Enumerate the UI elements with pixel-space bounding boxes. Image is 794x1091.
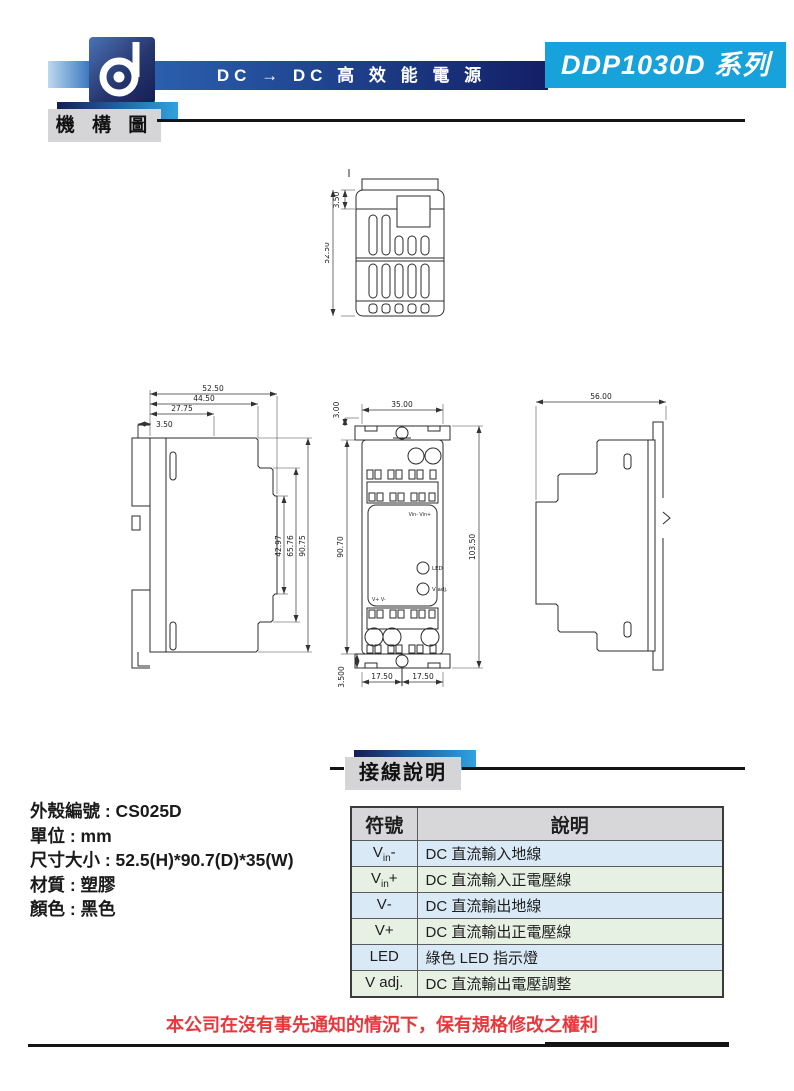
col-header-desc: 說明: [417, 807, 723, 841]
right-side-view-drawing: 56.00: [520, 388, 700, 680]
table-row: LED 綠色 LED 指示燈: [351, 945, 723, 971]
desc-cell: DC 直流輸出正電壓線: [417, 919, 723, 945]
terminal-strip: [369, 610, 435, 618]
dim-label: 17.50: [412, 672, 434, 681]
product-info-line: 材質 : 塑膠: [30, 873, 345, 898]
desc-cell: DC 直流輸出電壓調整: [417, 971, 723, 998]
symbol-cell: Vin-: [351, 841, 417, 867]
dim-label: 42.97: [274, 535, 283, 557]
table-header-row: 符號 說明: [351, 807, 723, 841]
vadj-potentiometer: [417, 583, 429, 595]
footer-rule-thin: [28, 1044, 560, 1047]
terminal-strip: [367, 470, 436, 479]
screw-hole: [365, 628, 383, 646]
section-label-mechanism: 機 構 圖: [48, 102, 188, 144]
section-title-mechanism: 機 構 圖: [48, 109, 161, 142]
din-clip-top: [138, 425, 150, 438]
vent-slots: [369, 215, 429, 313]
table-row: V adj. DC 直流輸出電壓調整: [351, 971, 723, 998]
dim-label: 44.50: [193, 394, 215, 403]
product-info-line: 外殼編號 : CS025D: [30, 799, 345, 824]
symbol-cell: Vin+: [351, 867, 417, 893]
dim-label: 3.50: [156, 420, 173, 429]
dim-label: 90.75: [298, 535, 307, 557]
table-row: Vin+ DC 直流輸入正電壓線: [351, 867, 723, 893]
header-product-line: DC → DC 高 效 能 電 源: [155, 61, 548, 90]
disclaimer-text: 本公司在沒有事先通知的情況下，保有規格修改之權利: [47, 1011, 717, 1037]
col-header-symbol: 符號: [351, 807, 417, 841]
product-info: 外殼編號 : CS025D 單位 : mm 尺寸大小 : 52.5(H)*90.…: [30, 799, 345, 922]
wiring-rule-dash: [330, 767, 344, 770]
screw-hole: [421, 628, 439, 646]
symbol-cell: V-: [351, 893, 417, 919]
dim-label: 90.70: [336, 536, 345, 558]
screw-hole: [408, 448, 424, 464]
dim-label: 3.50: [332, 191, 341, 208]
led-label: LED: [432, 566, 443, 572]
dim-label: 35.00: [391, 400, 413, 409]
screw-hole: [383, 628, 401, 646]
header-left-strip: [48, 61, 90, 88]
front-terminal-label-bottom: V+ V-: [372, 597, 386, 603]
din-clip-latch-bottom: [396, 655, 408, 667]
led-indicator: [417, 562, 429, 574]
product-info-line: 尺寸大小 : 52.5(H)*90.7(D)*35(W): [30, 848, 345, 873]
screw-hole: [425, 448, 441, 464]
wiring-rule: [462, 767, 745, 770]
datasheet-page: { "header": { "logo": "d", "product_line…: [0, 0, 794, 1091]
series-badge: DDP1030D 系列: [545, 42, 786, 88]
footer-rule-thick: [545, 1042, 729, 1047]
desc-cell: DC 直流輸入地線: [417, 841, 723, 867]
product-info-line: 顏色 : 黑色: [30, 897, 345, 922]
desc-cell: DC 直流輸出地線: [417, 893, 723, 919]
dim-label: 3.500: [337, 666, 346, 688]
dim-label: 27.75: [171, 404, 193, 413]
brand-logo: [89, 37, 155, 104]
left-side-view-drawing: 52.50 44.50 27.75 3.50 42.97 65.76 90.75: [110, 380, 320, 680]
din-clip-latch-top: [396, 427, 408, 439]
dim-label: 3.00: [333, 401, 341, 418]
front-view-drawing: Vin- Vin+ LED V adj. V+ V- 3.00 35.00 90…: [333, 386, 495, 691]
table-row: V- DC 直流輸出地線: [351, 893, 723, 919]
dim-label: 17.50: [371, 672, 393, 681]
table-row: V+ DC 直流輸出正電壓線: [351, 919, 723, 945]
symbol-cell: LED: [351, 945, 417, 971]
dim-label: 52.50: [202, 384, 224, 393]
mechanism-rule: [157, 119, 745, 122]
din-rail-tab-top: [653, 422, 663, 440]
brand-logo-d-icon: [89, 37, 155, 104]
wiring-table: 符號 說明 Vin- DC 直流輸入地線 Vin+ DC 直流輸入正電壓線 V-…: [350, 806, 724, 998]
din-rail-hook: [663, 512, 670, 524]
front-terminal-label-top: Vin- Vin+: [409, 512, 431, 518]
section-label-wiring: 接線說明: [345, 750, 485, 792]
terminal-strip: [367, 645, 436, 653]
desc-cell: DC 直流輸入正電壓線: [417, 867, 723, 893]
section-title-wiring: 接線說明: [345, 757, 461, 790]
dim-label: 56.00: [590, 392, 612, 401]
din-clip-bottom: [132, 590, 150, 668]
top-view-drawing: 3.50 52.50: [325, 163, 460, 323]
desc-cell: 綠色 LED 指示燈: [417, 945, 723, 971]
product-info-line: 單位 : mm: [30, 824, 345, 849]
dim-label: 65.76: [286, 535, 295, 557]
symbol-cell: V adj.: [351, 971, 417, 998]
terminal-strip: [369, 493, 435, 501]
table-row: Vin- DC 直流輸入地線: [351, 841, 723, 867]
dim-label: 103.50: [468, 534, 477, 560]
dim-label: 52.50: [325, 242, 331, 264]
vadj-label: V adj.: [432, 587, 448, 593]
symbol-cell: V+: [351, 919, 417, 945]
